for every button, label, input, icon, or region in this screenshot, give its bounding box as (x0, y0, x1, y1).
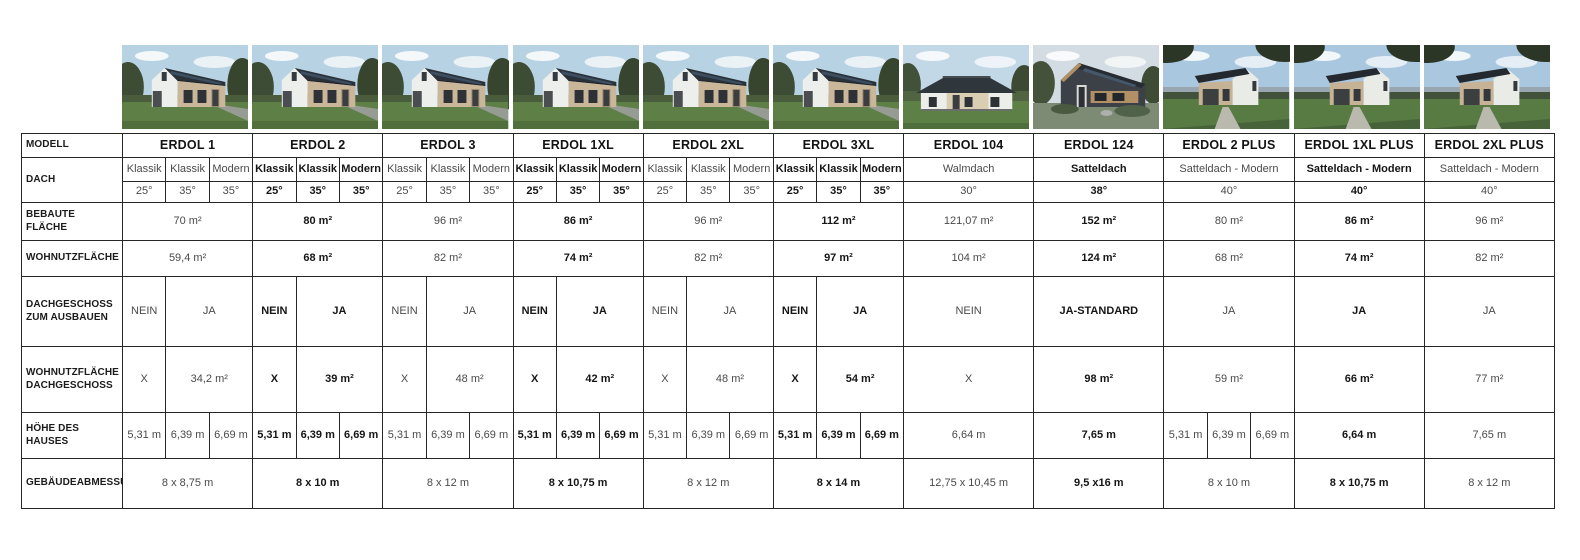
dimensions-cell: 8 x 12 m (644, 459, 774, 509)
roof-type-cell: Modern (470, 158, 513, 182)
attic-area-cell: X (904, 347, 1034, 413)
model-comparison-table: MODELLDACHBEBAUTE FLÄCHEWOHNUTZFLÄCHEDAC… (21, 133, 1555, 509)
attic-area-cell: 98 m² (1034, 347, 1164, 413)
attic-expandable-cell: NEIN (904, 277, 1034, 347)
living-area-cell: 82 m² (644, 241, 774, 277)
roof-type-cell: Klassik (166, 158, 209, 182)
attic-expandable-cell: NEIN (514, 277, 557, 347)
house-height-cell: 6,39 m (687, 413, 730, 459)
roof-type-cell: Klassik (817, 158, 860, 182)
house-photo-erdol-2-plus (1163, 45, 1293, 129)
roof-angle-cell: 40° (1425, 182, 1555, 203)
roof-type-cell: Satteldach - Modern (1425, 158, 1555, 182)
attic-area-cell: X (253, 347, 296, 413)
roof-type-cell: Klassik (557, 158, 600, 182)
living-area-cell: 68 m² (1164, 241, 1294, 277)
house-photo-erdol-3 (382, 45, 512, 129)
house-photo-erdol-2xl (643, 45, 773, 129)
row-header-modell: MODELL (22, 134, 123, 158)
model-name-cell: ERDOL 3 (383, 134, 513, 158)
model-name-cell: ERDOL 2XL PLUS (1425, 134, 1555, 158)
attic-area-cell: 42 m² (557, 347, 644, 413)
house-height-cell: 5,31 m (514, 413, 557, 459)
house-photo-erdol-124 (1033, 45, 1163, 129)
attic-area-cell: X (123, 347, 166, 413)
roof-angle-cell: 35° (557, 182, 600, 203)
roof-type-cell: Modern (600, 158, 643, 182)
row-header-hoehe: HÖHE DES HAUSES (22, 413, 123, 459)
attic-expandable-cell: JA (1164, 277, 1294, 347)
dimensions-cell: 9,5 x16 m (1034, 459, 1164, 509)
roof-angle-cell: 25° (514, 182, 557, 203)
roof-angle-cell: 40° (1295, 182, 1425, 203)
roof-type-cell: Satteldach - Modern (1164, 158, 1294, 182)
attic-expandable-cell: JA (817, 277, 904, 347)
house-height-cell: 6,69 m (730, 413, 773, 459)
model-name-cell: ERDOL 124 (1034, 134, 1164, 158)
house-height-cell: 6,39 m (166, 413, 209, 459)
living-area-cell: 74 m² (1295, 241, 1425, 277)
attic-area-cell: 59 m² (1164, 347, 1294, 413)
attic-area-cell: X (644, 347, 687, 413)
house-height-cell: 5,31 m (774, 413, 817, 459)
model-name-cell: ERDOL 2 PLUS (1164, 134, 1294, 158)
house-height-cell: 6,69 m (470, 413, 513, 459)
dimensions-cell: 8 x 14 m (774, 459, 904, 509)
built-area-cell: 96 m² (383, 203, 513, 241)
roof-angle-cell: 35° (861, 182, 904, 203)
attic-expandable-cell: JA (1295, 277, 1425, 347)
attic-expandable-cell: JA (166, 277, 253, 347)
attic-expandable-cell: JA (427, 277, 514, 347)
roof-type-cell: Modern (861, 158, 904, 182)
house-height-cell: 6,39 m (817, 413, 860, 459)
attic-expandable-cell: JA (297, 277, 384, 347)
attic-expandable-cell: JA (1425, 277, 1555, 347)
built-area-cell: 96 m² (1425, 203, 1555, 241)
house-height-cell: 6,69 m (861, 413, 904, 459)
attic-area-cell: X (774, 347, 817, 413)
roof-angle-cell: 35° (297, 182, 340, 203)
house-height-cell: 5,31 m (253, 413, 296, 459)
built-area-cell: 121,07 m² (904, 203, 1034, 241)
house-height-cell: 6,69 m (600, 413, 643, 459)
roof-type-cell: Klassik (774, 158, 817, 182)
roof-angle-cell: 35° (687, 182, 730, 203)
dimensions-cell: 8 x 12 m (1425, 459, 1555, 509)
attic-area-cell: 77 m² (1425, 347, 1555, 413)
roof-type-cell: Klassik (123, 158, 166, 182)
house-height-cell: 6,39 m (1208, 413, 1251, 459)
attic-area-cell: X (514, 347, 557, 413)
roof-type-cell: Walmdach (904, 158, 1034, 182)
model-name-cell: ERDOL 2XL (644, 134, 774, 158)
roof-angle-cell: 35° (210, 182, 253, 203)
attic-expandable-cell: NEIN (383, 277, 426, 347)
living-area-cell: 59,4 m² (123, 241, 253, 277)
house-height-cell: 6,69 m (1251, 413, 1294, 459)
model-name-cell: ERDOL 3XL (774, 134, 904, 158)
row-header-dachgeschoss: DACHGESCHOSS ZUM AUSBAUEN (22, 277, 123, 347)
house-comparison-page: MODELLDACHBEBAUTE FLÄCHEWOHNUTZFLÄCHEDAC… (0, 0, 1580, 560)
roof-type-cell: Modern (730, 158, 773, 182)
roof-angle-cell: 35° (427, 182, 470, 203)
house-height-cell: 6,64 m (904, 413, 1034, 459)
house-height-cell: 6,39 m (297, 413, 340, 459)
row-header-bebaute_flaeche: BEBAUTE FLÄCHE (22, 203, 123, 241)
house-photo-erdol-1xl-plus (1294, 45, 1424, 129)
roof-angle-cell: 25° (253, 182, 296, 203)
row-header-gebaeude: GEBÄUDEABMESSUNG (22, 459, 123, 509)
roof-type-cell: Modern (340, 158, 383, 182)
roof-angle-cell: 35° (730, 182, 773, 203)
built-area-cell: 80 m² (1164, 203, 1294, 241)
roof-type-cell: Klassik (644, 158, 687, 182)
roof-angle-cell: 35° (340, 182, 383, 203)
attic-expandable-cell: NEIN (644, 277, 687, 347)
model-name-cell: ERDOL 1XL (514, 134, 644, 158)
house-height-cell: 5,31 m (383, 413, 426, 459)
roof-type-cell: Klassik (297, 158, 340, 182)
roof-angle-cell: 35° (470, 182, 513, 203)
roof-type-cell: Klassik (514, 158, 557, 182)
living-area-cell: 68 m² (253, 241, 383, 277)
living-area-cell: 82 m² (383, 241, 513, 277)
row-header-wohnutzflaeche_dg: WOHNUTZFLÄCHE DACHGESCHOSS (22, 347, 123, 413)
house-height-cell: 6,39 m (557, 413, 600, 459)
roof-angle-cell: 25° (383, 182, 426, 203)
built-area-cell: 70 m² (123, 203, 253, 241)
house-photo-erdol-2xl-plus (1424, 45, 1554, 129)
living-area-cell: 97 m² (774, 241, 904, 277)
attic-expandable-cell: NEIN (253, 277, 296, 347)
attic-area-cell: 54 m² (817, 347, 904, 413)
built-area-cell: 152 m² (1034, 203, 1164, 241)
living-area-cell: 104 m² (904, 241, 1034, 277)
house-height-cell: 6,69 m (340, 413, 383, 459)
dimensions-cell: 12,75 x 10,45 m (904, 459, 1034, 509)
roof-angle-cell: 35° (600, 182, 643, 203)
built-area-cell: 96 m² (644, 203, 774, 241)
roof-angle-cell: 40° (1164, 182, 1294, 203)
house-photo-erdol-104 (903, 45, 1033, 129)
house-height-cell: 6,39 m (427, 413, 470, 459)
built-area-cell: 86 m² (1295, 203, 1425, 241)
living-area-cell: 74 m² (514, 241, 644, 277)
living-area-cell: 82 m² (1425, 241, 1555, 277)
dimensions-cell: 8 x 10,75 m (514, 459, 644, 509)
attic-area-cell: 66 m² (1295, 347, 1425, 413)
house-photo-strip (21, 45, 1554, 129)
built-area-cell: 80 m² (253, 203, 383, 241)
built-area-cell: 112 m² (774, 203, 904, 241)
house-height-cell: 7,65 m (1425, 413, 1555, 459)
model-name-cell: ERDOL 1 (123, 134, 253, 158)
house-height-cell: 6,69 m (210, 413, 253, 459)
dimensions-cell: 8 x 12 m (383, 459, 513, 509)
roof-angle-cell: 25° (774, 182, 817, 203)
roof-angle-cell: 35° (166, 182, 209, 203)
attic-area-cell: X (383, 347, 426, 413)
dimensions-cell: 8 x 10 m (1164, 459, 1294, 509)
row-header-wohnutzflaeche: WOHNUTZFLÄCHE (22, 241, 123, 277)
model-name-cell: ERDOL 2 (253, 134, 383, 158)
roof-type-cell: Klassik (383, 158, 426, 182)
roof-type-cell: Klassik (253, 158, 296, 182)
house-height-cell: 5,31 m (123, 413, 166, 459)
roof-angle-cell: 25° (644, 182, 687, 203)
house-photo-erdol-1xl (513, 45, 643, 129)
attic-expandable-cell: JA (557, 277, 644, 347)
house-height-cell: 5,31 m (1164, 413, 1207, 459)
roof-type-cell: Satteldach - Modern (1295, 158, 1425, 182)
dimensions-cell: 8 x 10 m (253, 459, 383, 509)
attic-area-cell: 34,2 m² (166, 347, 253, 413)
roof-angle-cell: 25° (123, 182, 166, 203)
house-height-cell: 5,31 m (644, 413, 687, 459)
roof-type-cell: Satteldach (1034, 158, 1164, 182)
attic-expandable-cell: NEIN (123, 277, 166, 347)
house-height-cell: 7,65 m (1034, 413, 1164, 459)
built-area-cell: 86 m² (514, 203, 644, 241)
house-height-cell: 6,64 m (1295, 413, 1425, 459)
attic-area-cell: 48 m² (687, 347, 774, 413)
attic-expandable-cell: JA (687, 277, 774, 347)
attic-expandable-cell: NEIN (774, 277, 817, 347)
attic-area-cell: 48 m² (427, 347, 514, 413)
dimensions-cell: 8 x 8,75 m (123, 459, 253, 509)
living-area-cell: 124 m² (1034, 241, 1164, 277)
model-name-cell: ERDOL 104 (904, 134, 1034, 158)
roof-type-cell: Modern (210, 158, 253, 182)
house-photo-erdol-2 (252, 45, 382, 129)
attic-area-cell: 39 m² (297, 347, 384, 413)
roof-angle-cell: 30° (904, 182, 1034, 203)
house-photo-erdol-3xl (773, 45, 903, 129)
attic-expandable-cell: JA-STANDARD (1034, 277, 1164, 347)
row-header-dach: DACH (22, 158, 123, 203)
model-name-cell: ERDOL 1XL PLUS (1295, 134, 1425, 158)
roof-type-cell: Klassik (687, 158, 730, 182)
dimensions-cell: 8 x 10,75 m (1295, 459, 1425, 509)
roof-angle-cell: 35° (817, 182, 860, 203)
roof-type-cell: Klassik (427, 158, 470, 182)
roof-angle-cell: 38° (1034, 182, 1164, 203)
house-photo-erdol-1 (122, 45, 252, 129)
